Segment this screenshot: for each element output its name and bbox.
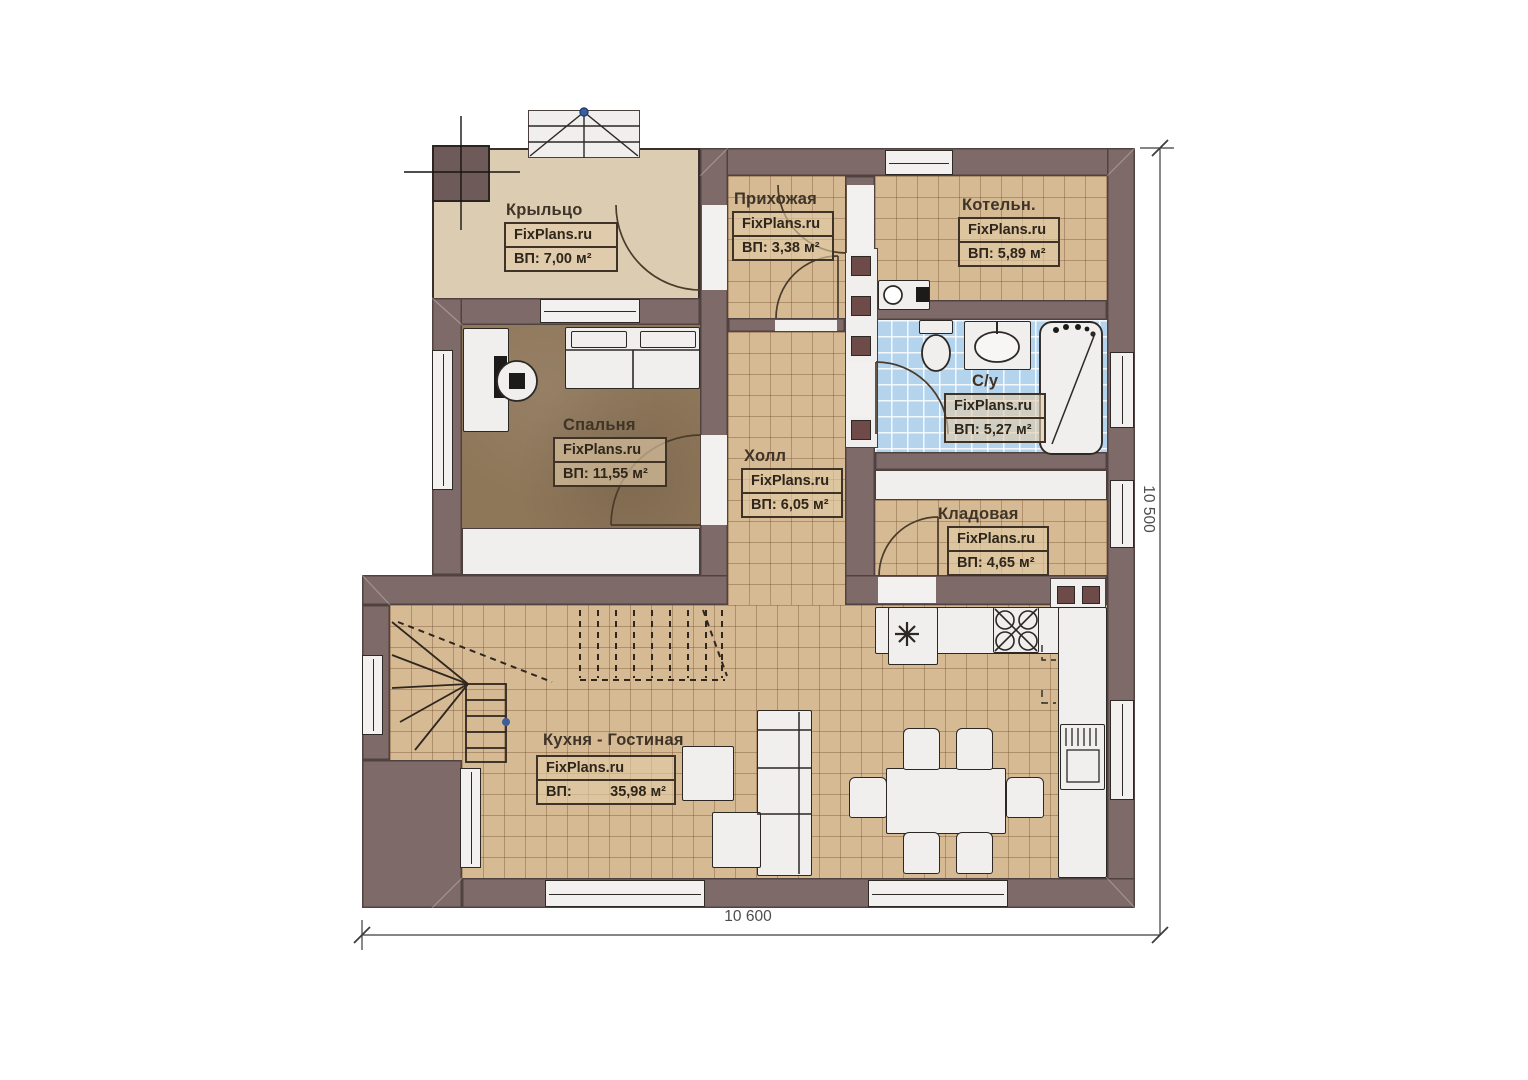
brand-row: FixPlans.ru (506, 224, 616, 246)
bed-pillow (571, 331, 627, 348)
door-opening-porch-entry (701, 205, 727, 290)
desk-monitor (494, 356, 507, 398)
area-row: ВП: 5,89 м² (960, 241, 1058, 265)
room-label-box-kitchen: FixPlans.ru ВП: 35,98 м² (536, 755, 676, 805)
sofa-chaise (712, 812, 761, 868)
floor-plan-canvas: Крыльцо FixPlans.ru ВП: 7,00 м² Прихожая… (0, 0, 1528, 1080)
window-kitchen-right (1110, 700, 1134, 800)
wall-bathroom-storage (875, 452, 1107, 470)
vent-flue-block (1082, 586, 1100, 604)
room-label-box-bedroom: FixPlans.ru ВП: 11,55 м² (553, 437, 667, 487)
bed-pillow (640, 331, 696, 348)
brand-row: FixPlans.ru (949, 528, 1047, 550)
area-prefix: ВП: (546, 784, 572, 800)
window-storage-right (1110, 480, 1134, 548)
room-label-box-entry: FixPlans.ru ВП: 3,38 м² (732, 211, 834, 261)
window-bathroom-right (1110, 352, 1134, 428)
room-label-box-porch: FixPlans.ru ВП: 7,00 м² (504, 222, 618, 272)
boiler-panel (916, 287, 929, 302)
brand-row: FixPlans.ru (743, 470, 841, 492)
room-label-box-storage: FixPlans.ru ВП: 4,65 м² (947, 526, 1049, 576)
dining-chair (1006, 777, 1044, 818)
wardrobe-bedroom (462, 528, 700, 575)
wall-corner-pier (362, 760, 462, 908)
room-name-boiler: Котельн. (962, 196, 1036, 215)
area-row: ВП: 35,98 м² (538, 779, 674, 803)
porch-column (432, 145, 490, 202)
brand-row: FixPlans.ru (734, 213, 832, 235)
window-kitchen-tall-left (460, 768, 481, 868)
sofa-main (757, 710, 812, 876)
brand-row: FixPlans.ru (538, 757, 674, 779)
dining-chair (956, 832, 993, 874)
door-opening-entry-hall (775, 320, 837, 331)
room-label-box-hall: FixPlans.ru ВП: 6,05 м² (741, 468, 843, 518)
wall-below-bedroom (362, 575, 728, 605)
dining-chair (956, 728, 993, 770)
dining-chair (903, 728, 940, 770)
door-opening-boiler (846, 185, 874, 253)
door-opening-bathroom (847, 362, 876, 417)
room-label-box-boiler: FixPlans.ru ВП: 5,89 м² (958, 217, 1060, 267)
porch-steps (528, 110, 640, 158)
room-label-box-bathroom: FixPlans.ru ВП: 5,27 м² (944, 393, 1046, 443)
room-name-kitchen: Кухня - Гостиная (543, 731, 684, 750)
vent-flue-block (1057, 586, 1075, 604)
kitchen-sink-cabinet (888, 607, 938, 665)
area-row: ВП: 6,05 м² (743, 492, 841, 516)
door-opening-storage (878, 577, 936, 603)
room-name-bathroom: С/у (972, 372, 998, 391)
window-bay-left (362, 655, 383, 735)
area-row: ВП: 5,27 м² (946, 417, 1044, 441)
area-value: 35,98 м² (610, 784, 666, 800)
window-kitchen-bottom-left (545, 880, 705, 907)
dimension-label-bottom: 10 600 (700, 908, 796, 926)
window-porch-bedroom (540, 299, 640, 323)
bathroom-sink-counter (964, 321, 1031, 370)
dimension-label-right: 10 500 (1139, 469, 1157, 549)
window-bedroom-left (432, 350, 453, 490)
area-row: ВП: 11,55 м² (555, 461, 665, 485)
room-name-bedroom: Спальня (563, 416, 636, 435)
room-name-storage: Кладовая (938, 505, 1019, 524)
brand-row: FixPlans.ru (946, 395, 1044, 417)
toilet-tank (919, 320, 953, 334)
door-opening-bedroom (701, 435, 727, 525)
window-kitchen-bottom-right (868, 880, 1008, 907)
area-row: ВП: 4,65 м² (949, 550, 1047, 574)
dining-table (886, 768, 1006, 834)
chimney-flue-block (851, 420, 871, 440)
refrigerator (1060, 724, 1105, 790)
chimney-flue-block (851, 336, 871, 356)
armchair (682, 746, 734, 801)
brand-row: FixPlans.ru (555, 439, 665, 461)
kitchen-stove (993, 607, 1039, 653)
area-row: ВП: 3,38 м² (734, 235, 832, 259)
window-boiler-top (885, 150, 953, 175)
dining-chair (903, 832, 940, 874)
room-floor-kitchen-bay (390, 605, 462, 760)
closet-storage (875, 470, 1107, 500)
room-name-hall: Холл (744, 447, 786, 466)
area-row: ВП: 7,00 м² (506, 246, 616, 270)
room-name-entry: Прихожая (734, 190, 817, 209)
brand-row: FixPlans.ru (960, 219, 1058, 241)
room-name-porch: Крыльцо (506, 201, 583, 220)
chimney-flue-block (851, 296, 871, 316)
chimney-flue-block (851, 256, 871, 276)
dining-chair (849, 777, 887, 818)
